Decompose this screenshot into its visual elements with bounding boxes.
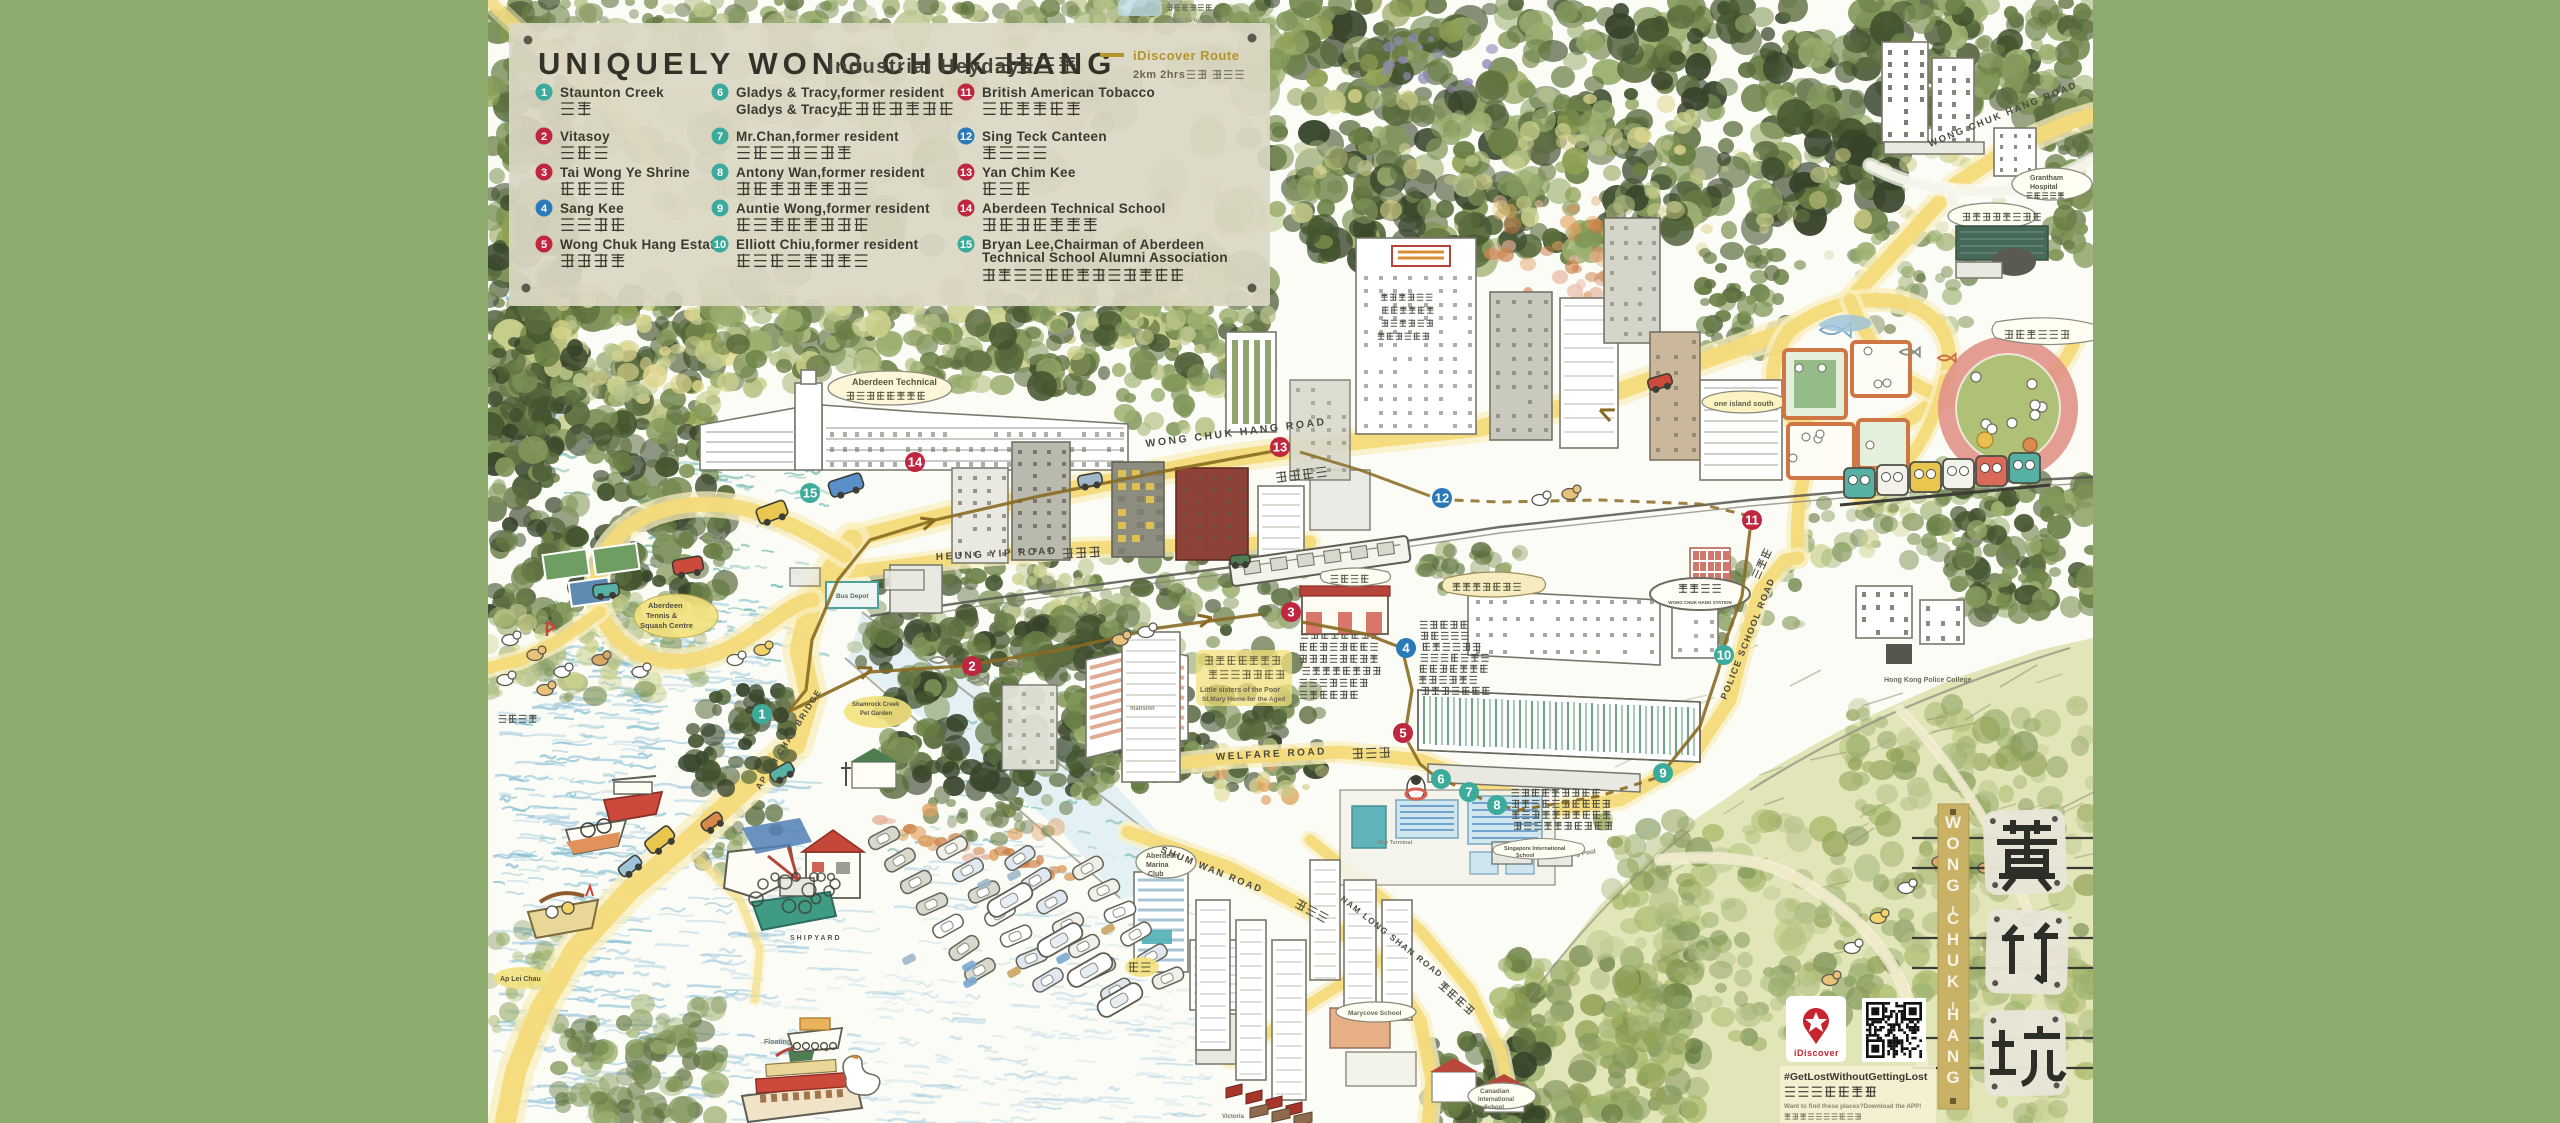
svg-text:International: International xyxy=(1478,1097,1514,1103)
svg-text:one island south: one island south xyxy=(1714,399,1774,408)
svg-text:Hospital: Hospital xyxy=(2030,184,2058,191)
svg-text:Victoria: Victoria xyxy=(1222,1114,1245,1120)
svg-text:Marycove School: Marycove School xyxy=(1348,1010,1402,1017)
svg-text:School: School xyxy=(1484,1105,1504,1111)
svg-text:Little sisters of the Poor: Little sisters of the Poor xyxy=(1200,687,1280,694)
svg-text:Canadian: Canadian xyxy=(1480,1088,1509,1095)
svg-text:Hong Kong Police College: Hong Kong Police College xyxy=(1884,677,1972,684)
svg-text:WONG CHUK HANG STATION: WONG CHUK HANG STATION xyxy=(1668,600,1732,605)
svg-text:Squash Centre: Squash Centre xyxy=(640,621,693,630)
svg-text:Aberdeen Technical: Aberdeen Technical xyxy=(852,377,937,387)
svg-text:Bus Depot: Bus Depot xyxy=(836,593,869,600)
svg-text:Aberdeen: Aberdeen xyxy=(648,601,683,610)
svg-text:Club: Club xyxy=(1148,871,1164,878)
svg-text:SHIPYARD: SHIPYARD xyxy=(790,935,842,942)
svg-text:mansion: mansion xyxy=(1130,706,1155,712)
svg-text:Tennis &: Tennis & xyxy=(646,611,678,620)
svg-text:St.Mary Home for the Aged: St.Mary Home for the Aged xyxy=(1202,696,1285,703)
svg-text:Grantham: Grantham xyxy=(2030,175,2063,182)
svg-text:Marina: Marina xyxy=(1146,862,1169,869)
